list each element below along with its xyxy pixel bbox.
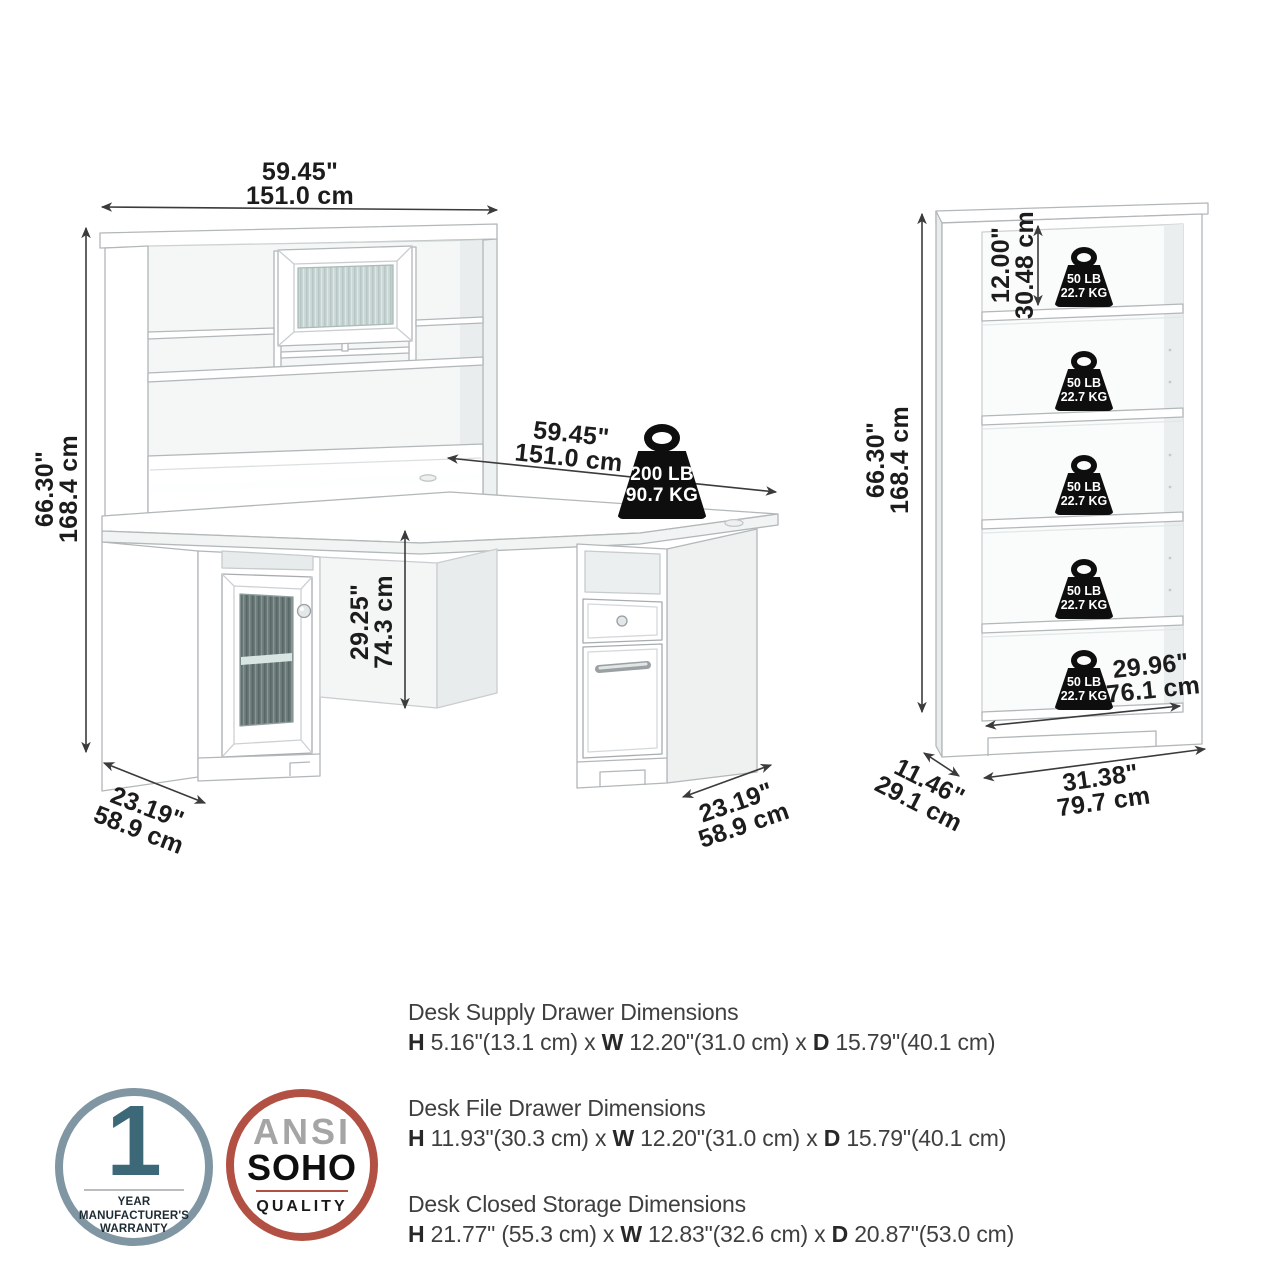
spec-values: H 5.16"(13.1 cm) x W 12.20"(31.0 cm) x D… <box>408 1027 1014 1057</box>
badge-divider <box>84 1189 184 1191</box>
weight-handle-icon <box>1071 247 1097 268</box>
right-pedestal-side <box>667 529 757 783</box>
corner-panel <box>437 549 497 708</box>
soho-text: SOHO <box>247 1149 357 1187</box>
door-knob <box>298 605 311 618</box>
desk-left-side-panel <box>102 542 198 791</box>
spec-values: H 21.77" (55.3 cm) x W 12.83"(32.6 cm) x… <box>408 1219 1014 1249</box>
dim-bookcase-height: 66.30" 168.4 cm <box>864 406 912 514</box>
weight-handle-icon <box>644 424 680 452</box>
warranty-badge: 1 YEAR MANUFACTURER'S WARRANTY <box>55 1088 213 1246</box>
weight-body-icon: 50 LB 22.7 KG <box>1054 473 1114 515</box>
weight-capacity-icon-shelf-1: 50 LB 22.7 KG <box>1054 247 1114 307</box>
weight-capacity-icon-shelf-4: 50 LB 22.7 KG <box>1054 559 1114 619</box>
spec-values: H 11.93"(30.3 cm) x W 12.20"(31.0 cm) x … <box>408 1123 1014 1153</box>
spec-title: Desk Supply Drawer Dimensions <box>408 997 1014 1027</box>
warranty-number: 1 <box>106 1099 162 1183</box>
dim-hutch-width: 59.45" 151.0 cm <box>246 160 354 208</box>
dim-bookcase-width: 31.38" 79.7 cm <box>1052 760 1152 821</box>
weight-handle-icon <box>1071 559 1097 580</box>
spec-title: Desk File Drawer Dimensions <box>408 1093 1014 1123</box>
ansi-text: ANSI <box>253 1115 351 1149</box>
warranty-text: WARRANTY <box>100 1223 168 1237</box>
hutch-left-panel <box>105 246 148 521</box>
open-cubby <box>585 551 660 594</box>
dim-shelf-width: 29.96" 76.1 cm <box>1103 649 1201 707</box>
spec-file-drawer: Desk File Drawer Dimensions H 11.93"(30.… <box>408 1093 1014 1153</box>
open-cubby <box>222 551 313 570</box>
weight-capacity-icon-shelf-2: 50 LB 22.7 KG <box>1054 351 1114 411</box>
cable-grommet <box>420 475 436 481</box>
drawer-knob <box>617 616 627 626</box>
drawer-dimensions-text: Desk Supply Drawer Dimensions H 5.16"(13… <box>408 997 1014 1280</box>
dim-desk-surface-width: 59.45" 151.0 cm <box>514 416 626 475</box>
warranty-text: YEAR MANUFACTURER'S <box>63 1196 205 1223</box>
frosted-glass <box>298 265 393 328</box>
spec-closed-storage: Desk Closed Storage Dimensions H 21.77" … <box>408 1189 1014 1249</box>
weight-body-icon: 50 LB 22.7 KG <box>1054 265 1114 307</box>
dim-desk-height: 66.30" 168.4 cm <box>33 435 81 543</box>
badge-divider <box>256 1190 348 1192</box>
ansi-soho-quality-badge: ANSI SOHO QUALITY <box>226 1089 378 1241</box>
cable-grommet <box>725 520 743 527</box>
product-dimension-diagram: 59.45" 151.0 cm 66.30" 168.4 cm 59.45" 1… <box>0 0 1280 1280</box>
weight-handle-icon <box>1071 351 1097 372</box>
weight-capacity-icon-shelf-3: 50 LB 22.7 KG <box>1054 455 1114 515</box>
spec-supply-drawer: Desk Supply Drawer Dimensions H 5.16"(13… <box>408 997 1014 1057</box>
weight-handle-icon <box>1071 650 1097 671</box>
weight-body-icon: 50 LB 22.7 KG <box>1054 668 1114 710</box>
spec-title: Desk Closed Storage Dimensions <box>408 1189 1014 1219</box>
weight-capacity-icon-shelf-5: 50 LB 22.7 KG <box>1054 650 1114 710</box>
weight-handle-icon <box>1071 455 1097 476</box>
dim-desk-surface-height: 29.25" 74.3 cm <box>348 575 396 669</box>
dim-shelf-spacing: 12.00" 30.48 cm <box>989 211 1037 319</box>
weight-capacity-icon-desk: 200 LB 90.7 KG <box>617 424 707 519</box>
file-drawer <box>583 644 662 758</box>
weight-body-icon: 50 LB 22.7 KG <box>1054 577 1114 619</box>
weight-body-icon: 50 LB 22.7 KG <box>1054 369 1114 411</box>
quality-text: QUALITY <box>256 1198 347 1215</box>
weight-body-icon: 200 LB 90.7 KG <box>617 451 707 519</box>
